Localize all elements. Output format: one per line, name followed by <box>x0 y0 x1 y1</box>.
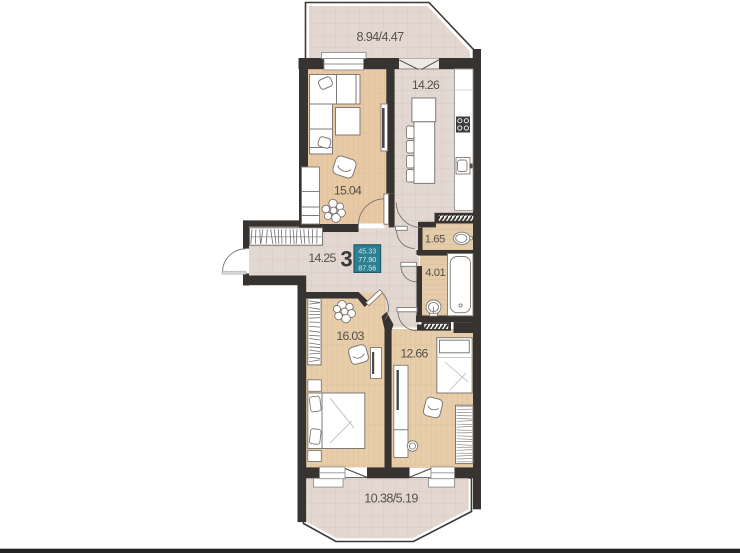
svg-text:14.26: 14.26 <box>412 78 440 92</box>
svg-text:14.25: 14.25 <box>308 251 336 265</box>
svg-text:12.66: 12.66 <box>400 346 428 360</box>
svg-text:3: 3 <box>340 247 352 272</box>
svg-text:8.94/4.47: 8.94/4.47 <box>356 30 404 44</box>
svg-text:16.03: 16.03 <box>336 329 364 343</box>
svg-text:15.04: 15.04 <box>334 183 362 197</box>
svg-text:1.65: 1.65 <box>425 233 445 245</box>
svg-text:4.01: 4.01 <box>425 267 445 279</box>
svg-text:10.38/5.19: 10.38/5.19 <box>364 492 418 506</box>
svg-text:87.56: 87.56 <box>358 264 376 273</box>
